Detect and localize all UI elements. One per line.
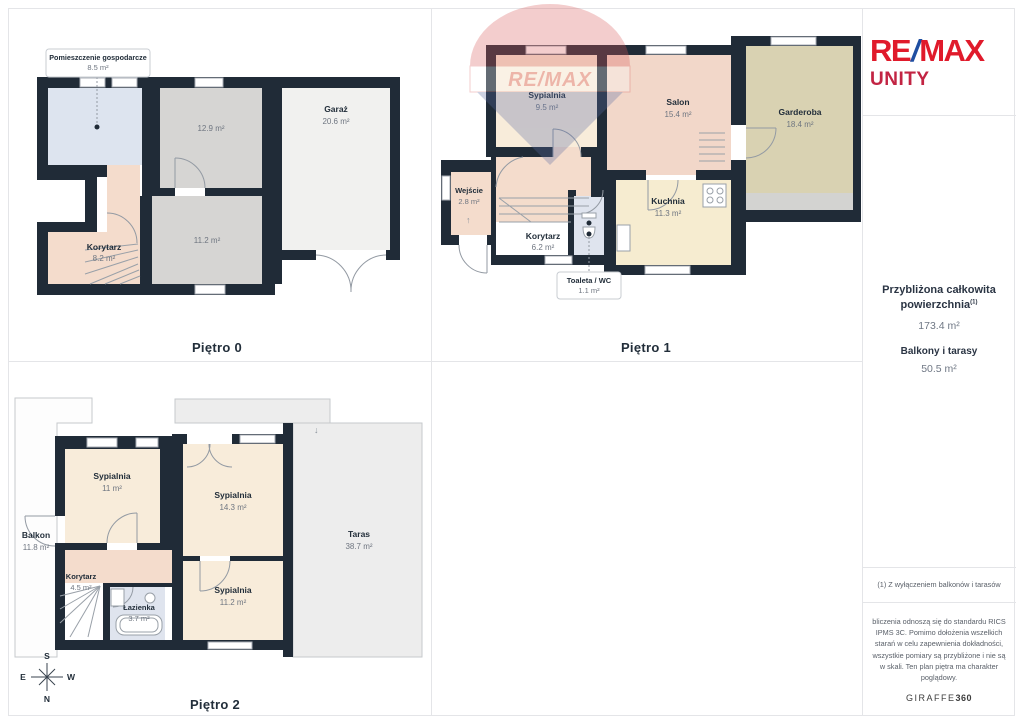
room-area-12-9: 12.9 m²: [197, 124, 224, 133]
room-area-korytarz0: 8.2 m²: [93, 254, 116, 263]
unity-logo-text: UNITY: [870, 70, 1016, 89]
floorplan-page: Pomieszczenie gospodarcze 8.5 m² 12.9 m²…: [0, 0, 1024, 724]
remax-logo-text: RE/MAX: [870, 35, 1016, 66]
floorplan-pietro-1: Toaleta / WC 1.1 m² Sypialnia 9.5 m² Sal…: [431, 0, 862, 361]
area-summary: Przybliżona całkowita powierzchnia(1) 17…: [864, 283, 1014, 375]
room-label-sypialnia-11: Sypialnia: [93, 471, 131, 481]
room-area-toaleta: 1.1 m²: [578, 286, 600, 295]
footnote-cell: (1) Z wyłączeniem balkonów i tarasów: [862, 567, 1016, 602]
callout-dot: [587, 232, 592, 237]
floor-label-pietro-1: Piętro 1: [621, 340, 671, 355]
room-area-sypialnia-11: 11 m²: [102, 484, 122, 493]
room-area-garaz: 20.6 m²: [322, 117, 349, 126]
total-area-title-line2: powierzchnia: [900, 299, 970, 311]
room-label-taras: Taras: [348, 529, 370, 539]
giraffe-360: 360: [955, 693, 972, 703]
room-area-lazienka: 3.7 m²: [128, 614, 150, 623]
footnote-text: (1) Z wyłączeniem balkonów i tarasów: [877, 580, 1000, 589]
room-area-taras: 38.7 m²: [345, 542, 372, 551]
balloon-dome: [470, 4, 630, 66]
room-label-balkon: Balkon: [22, 530, 50, 540]
compass: S E W N: [20, 651, 76, 704]
room-label-sypialnia-11-2: Sypialnia: [214, 585, 252, 595]
room-area-sypialnia-11-2: 11.2 m²: [220, 598, 247, 607]
room-label-salon: Salon: [666, 97, 689, 107]
floor-label-pietro-2: Piętro 2: [190, 697, 240, 712]
room-sypialnia-11: [65, 449, 160, 543]
room-label-garderoba: Garderoba: [779, 107, 822, 117]
room-area-pomieszczenie: 8.5 m²: [87, 63, 109, 72]
compass-east: E: [20, 672, 26, 682]
balcony-area-value: 50.5 m²: [864, 363, 1014, 375]
room-area-garderoba: 18.4 m²: [786, 120, 813, 129]
compass-south: S: [44, 651, 50, 661]
floor-label-pietro-0: Piętro 0: [192, 340, 242, 355]
room-area-wejscie: 2.8 m²: [458, 197, 480, 206]
compass-west: W: [67, 672, 76, 682]
room-label-korytarz0: Korytarz: [87, 242, 121, 252]
room-area-korytarz2: 4.5 m²: [70, 583, 92, 592]
room-label-sypialnia-14-3: Sypialnia: [214, 490, 252, 500]
room-area-kuchnia: 11.3 m²: [655, 209, 682, 218]
total-area-title: Przybliżona całkowita powierzchnia(1): [864, 283, 1014, 313]
room-taras: [293, 423, 422, 657]
room-label-kuchnia: Kuchnia: [651, 196, 685, 206]
entry-arrow-icon: ↑: [466, 215, 471, 225]
total-area-footnote-ref: (1): [970, 299, 977, 305]
remax-slash-icon: /: [910, 33, 919, 68]
floorplan-pietro-0: Pomieszczenie gospodarcze 8.5 m² 12.9 m²…: [0, 0, 431, 361]
room-label-toaleta: Toaleta / WC: [567, 276, 612, 285]
total-area-value: 173.4 m²: [864, 320, 1014, 332]
balcony-area-title: Balkony i tarasy: [864, 346, 1014, 357]
terrace-upper-strip: [175, 399, 330, 423]
room-garderoba-strip: [746, 193, 853, 210]
total-area-title-line1: Przybliżona całkowita: [882, 284, 996, 296]
counter-icon: [617, 225, 630, 251]
room-area-korytarz1: 6.2 m²: [532, 243, 555, 252]
remax-re: RE: [870, 33, 910, 68]
agency-logo: RE/MAX UNITY: [862, 8, 1016, 115]
room-label-garaz: Garaż: [324, 104, 348, 114]
logo-cell-border: [862, 115, 1016, 116]
washer-icon: [111, 589, 124, 606]
room-sypialnia-14-3: [183, 444, 283, 556]
room-label-korytarz1: Korytarz: [526, 231, 560, 241]
room-area-11-2: 11.2 m²: [194, 236, 221, 245]
floorplan-pietro-2: ↓ Sypialnia 11 m² Sypialnia 14.3 m² Balk…: [0, 361, 431, 724]
room-label-pomieszczenie: Pomieszczenie gospodarcze: [49, 53, 146, 62]
room-label-korytarz2: Korytarz: [66, 572, 97, 581]
balloon-text: RE/MAX: [508, 69, 592, 91]
callout-dot: [95, 125, 100, 130]
room-label-wejscie: Wejście: [455, 186, 483, 195]
compass-north: N: [44, 694, 50, 704]
room-korytarz-strip: [107, 165, 140, 284]
stove-icon: [703, 184, 726, 207]
giraffe-brand: GIRAFFE: [906, 693, 956, 703]
room-label-lazienka: Łazienka: [123, 603, 156, 612]
room-area-salon: 15.4 m²: [664, 110, 691, 119]
terrace-arrow-icon: ↓: [314, 425, 319, 435]
remax-max: MAX: [919, 33, 983, 68]
sink-icon: [145, 593, 155, 603]
disclaimer-text: bliczenia odnoszą się do standardu RICS …: [871, 616, 1007, 684]
room-area-sypialnia-14-3: 14.3 m²: [219, 503, 246, 512]
room-area-balkon: 11.8 m²: [23, 543, 50, 552]
disclaimer-cell: bliczenia odnoszą się do standardu RICS …: [862, 602, 1016, 717]
giraffe360-logo: GIRAFFE360: [906, 693, 972, 703]
